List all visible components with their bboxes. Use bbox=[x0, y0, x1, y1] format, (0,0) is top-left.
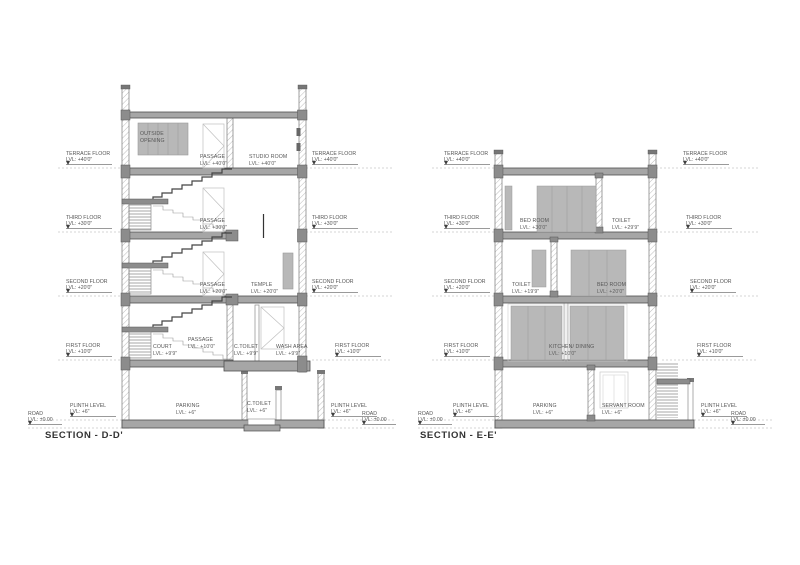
room-label-parking-dd: PARKINGLVL: +6" bbox=[176, 403, 200, 416]
level-arrow-icon bbox=[686, 225, 690, 235]
room-label-parking-ee: PARKINGLVL: +6" bbox=[533, 403, 557, 416]
level-arrow-icon bbox=[444, 225, 448, 235]
level-mark-first: FIRST FLOORLVL: +10'0" bbox=[444, 343, 490, 364]
level-mark-terrace: TERRACE FLOORLVL: +40'0" bbox=[312, 151, 358, 172]
level-arrow-icon bbox=[444, 289, 448, 299]
level-arrow-icon bbox=[444, 353, 448, 363]
room-label-ctoilet-ground: C.TOILETLVL: +6" bbox=[247, 401, 271, 414]
room-label-bedroom-second: BED ROOMLVL: +20'0" bbox=[597, 282, 626, 295]
level-arrow-icon bbox=[312, 225, 316, 235]
drawing-sheet: OUTSIDE OPENING PASSAGELVL: +40'0" STUDI… bbox=[0, 0, 800, 565]
level-mark-first: FIRST FLOORLVL: +10'0" bbox=[697, 343, 743, 364]
level-arrow-icon bbox=[66, 289, 70, 299]
level-arrow-icon bbox=[683, 161, 687, 171]
level-arrow-icon bbox=[362, 421, 366, 431]
dd-stairs bbox=[122, 169, 232, 359]
room-label-court: COURTLVL: +9'9" bbox=[153, 344, 177, 357]
room-label-passage-first: PASSAGELVL: +10'0" bbox=[188, 337, 215, 350]
level-mark-second: SECOND FLOORLVL: +20'0" bbox=[312, 279, 358, 300]
room-label-wash-area: WASH AREALVL: +9'9" bbox=[276, 344, 308, 357]
level-mark-terrace: TERRACE FLOORLVL: +40'0" bbox=[683, 151, 729, 172]
room-label-toilet-third: TOILETLVL: +29'9" bbox=[612, 218, 639, 231]
level-mark-first: FIRST FLOORLVL: +10'0" bbox=[66, 343, 112, 364]
level-arrow-icon bbox=[697, 353, 701, 363]
level-mark-second: SECOND FLOORLVL: +20'0" bbox=[690, 279, 736, 300]
level-mark-road: ROADLVL: ±0.00 bbox=[731, 411, 765, 432]
level-arrow-icon bbox=[335, 353, 339, 363]
level-arrow-icon bbox=[312, 289, 316, 299]
level-arrow-icon bbox=[70, 413, 74, 423]
level-mark-terrace: TERRACE FLOORLVL: +40'0" bbox=[66, 151, 112, 172]
level-mark-second: SECOND FLOORLVL: +20'0" bbox=[66, 279, 112, 300]
level-arrow-icon bbox=[66, 353, 70, 363]
level-arrow-icon bbox=[731, 421, 735, 431]
room-label-passage-second: PASSAGELVL: +20'0" bbox=[200, 282, 227, 295]
level-mark-road: ROADLVL: ±0.00 bbox=[362, 411, 396, 432]
level-mark-second: SECOND FLOORLVL: +20'0" bbox=[444, 279, 490, 300]
level-mark-third: THIRD FLOORLVL: +30'0" bbox=[444, 215, 490, 236]
room-label-temple: TEMPLELVL: +20'0" bbox=[251, 282, 278, 295]
level-arrow-icon bbox=[312, 161, 316, 171]
level-mark-first: FIRST FLOORLVL: +10'0" bbox=[335, 343, 381, 364]
level-arrow-icon bbox=[66, 225, 70, 235]
level-arrow-icon bbox=[28, 421, 32, 431]
section-title-ee: SECTION - E-E' bbox=[420, 430, 497, 441]
level-mark-terrace: TERRACE FLOORLVL: +40'0" bbox=[444, 151, 490, 172]
room-label-toilet-second: TOILETLVL: +19'9" bbox=[512, 282, 539, 295]
level-mark-plinth: PLINTH LEVELLVL: +6" bbox=[453, 403, 499, 424]
room-label-studio-room: STUDIO ROOMLVL: +40'0" bbox=[249, 154, 287, 167]
section-linework bbox=[0, 0, 800, 565]
room-label-passage-third: PASSAGELVL: +30'0" bbox=[200, 218, 227, 231]
ee-exterior-stair bbox=[657, 362, 690, 418]
level-arrow-icon bbox=[453, 413, 457, 423]
level-mark-plinth: PLINTH LEVELLVL: +6" bbox=[70, 403, 116, 424]
room-label-outside-opening: OUTSIDE OPENING bbox=[140, 131, 176, 144]
level-arrow-icon bbox=[66, 161, 70, 171]
room-label-bedroom-third: BED ROOMLVL: +30'0" bbox=[520, 218, 549, 231]
level-arrow-icon bbox=[701, 413, 705, 423]
level-mark-third: THIRD FLOORLVL: +30'0" bbox=[66, 215, 112, 236]
room-label-passage-terrace: PASSAGELVL: +40'0" bbox=[200, 154, 227, 167]
level-arrow-icon bbox=[690, 289, 694, 299]
level-arrow-icon bbox=[331, 413, 335, 423]
room-label-servant-room: SERVANT ROOMLVL: +6" bbox=[602, 403, 645, 416]
level-arrow-icon bbox=[444, 161, 448, 171]
level-mark-road: ROADLVL: ±0.00 bbox=[28, 411, 62, 432]
level-mark-road: ROADLVL: ±0.00 bbox=[418, 411, 452, 432]
room-label-kitchen-dining: KITCHEN/ DININGLVL: +10'0" bbox=[549, 344, 594, 357]
dd-sunken-toilet-floor bbox=[244, 419, 280, 431]
section-title-dd: SECTION - D-D' bbox=[45, 430, 123, 441]
level-mark-third: THIRD FLOORLVL: +30'0" bbox=[312, 215, 358, 236]
level-mark-third: THIRD FLOORLVL: +30'0" bbox=[686, 215, 732, 236]
room-label-ctoilet-first: C.TOILETLVL: +9'9" bbox=[234, 344, 258, 357]
